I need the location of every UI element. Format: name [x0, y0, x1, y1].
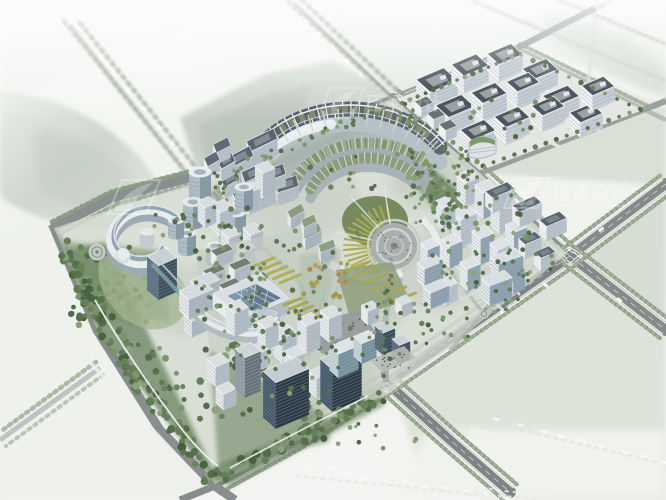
- svg-text:臣通设计: 臣通设计: [552, 183, 628, 205]
- svg-text:臣通设计: 臣通设计: [366, 93, 442, 115]
